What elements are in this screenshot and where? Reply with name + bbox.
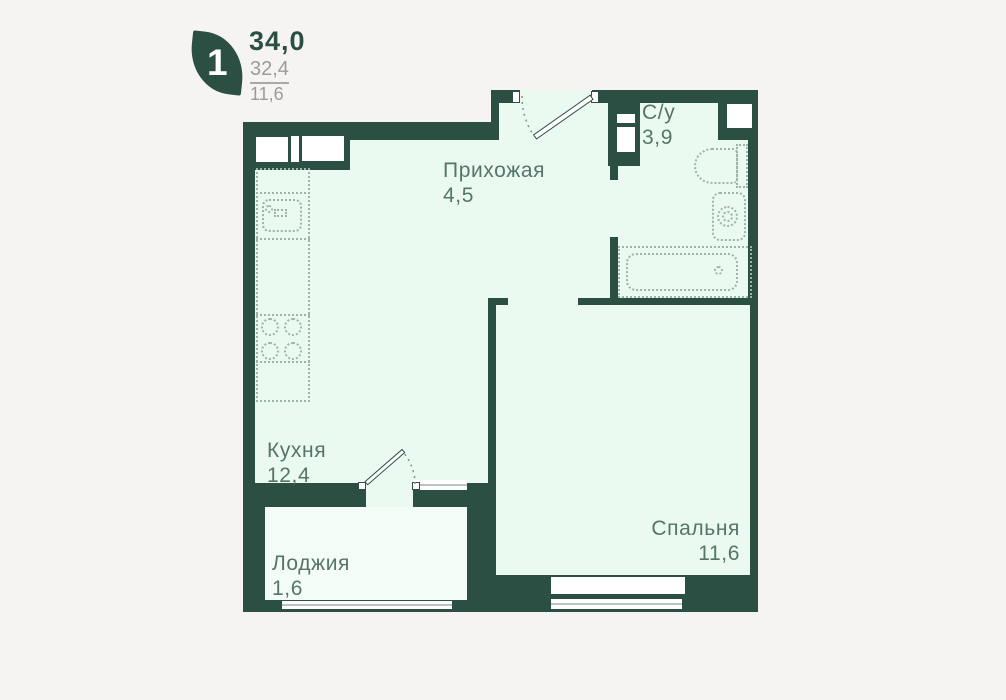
kitchen-counter-divider-2	[256, 238, 310, 240]
kitchen-area-value: 11,6	[250, 84, 284, 105]
kitchen-counter-divider-3	[256, 314, 310, 316]
kitchen-label-group: Кухня 12,4	[267, 438, 326, 488]
total-area-value: 34,0	[249, 26, 306, 57]
hallway-label-group: Прихожая 4,5	[443, 158, 545, 208]
loggia-window	[282, 601, 452, 609]
kitchen-sink-tap-body	[274, 209, 287, 217]
bathroom-label-group: С/у 3,9	[642, 100, 675, 150]
loggia-label: Лоджия	[272, 551, 350, 576]
stove-burner-3	[261, 342, 279, 360]
kitchen-counter-divider-1	[256, 192, 310, 194]
toilet-bowl	[694, 148, 738, 184]
bedroom-window-inner	[551, 577, 685, 594]
stove-burner-2	[284, 318, 302, 336]
corner-duct-cell	[727, 104, 752, 128]
kitchen-shaft-cell-2	[291, 136, 299, 162]
loggia-window-glass-line	[282, 604, 452, 606]
kitchen-area: 12,4	[267, 463, 326, 488]
bathroom-shaft-cell-large	[617, 127, 635, 152]
kitchen-shaft-cell-3	[302, 136, 344, 161]
loggia-area: 1,6	[272, 576, 350, 601]
kitchen-counter-divider-4	[256, 361, 310, 363]
kitchen-window-glass-line	[413, 484, 467, 486]
bedroom-label: Спальня	[590, 516, 740, 541]
bathroom-area: 3,9	[642, 125, 675, 150]
kitchen-window	[413, 480, 467, 490]
bathroom-label: С/у	[642, 100, 675, 125]
entrance-jamb-left	[512, 91, 520, 103]
loggia-door-opening	[366, 483, 413, 507]
hallway-area: 4,5	[443, 183, 545, 208]
kitchen-label: Кухня	[267, 438, 326, 463]
bathtub-drain-icon	[714, 266, 723, 275]
bathroom-door-opening	[606, 180, 620, 237]
room-count: 1	[207, 42, 228, 84]
hallway-label: Прихожая	[443, 158, 545, 183]
bathroom-shaft-cell-small	[617, 114, 635, 123]
loggia-label-group: Лоджия 1,6	[272, 551, 350, 601]
toilet-tank	[736, 144, 748, 188]
bedroom-label-group: Спальня 11,6	[590, 516, 740, 566]
washing-machine-door-inner	[722, 211, 733, 222]
kitchen-sink-tap-icon	[265, 205, 273, 213]
stove-burner-4	[284, 342, 302, 360]
room-count-leaf-icon: 1	[187, 30, 247, 95]
bedroom-window-outer	[551, 599, 682, 609]
floorplan-canvas: 1 34,0 32,4 11,6	[0, 0, 1006, 700]
bedroom-window-glass-line	[551, 603, 682, 605]
living-area-value: 32,4	[250, 58, 289, 84]
bedroom-area: 11,6	[590, 541, 740, 566]
kitchen-shaft-cell-1	[256, 137, 288, 162]
loggia-jamb-right	[412, 482, 420, 490]
stove-burner-1	[261, 318, 279, 336]
bedroom-passage-opening	[508, 298, 578, 305]
